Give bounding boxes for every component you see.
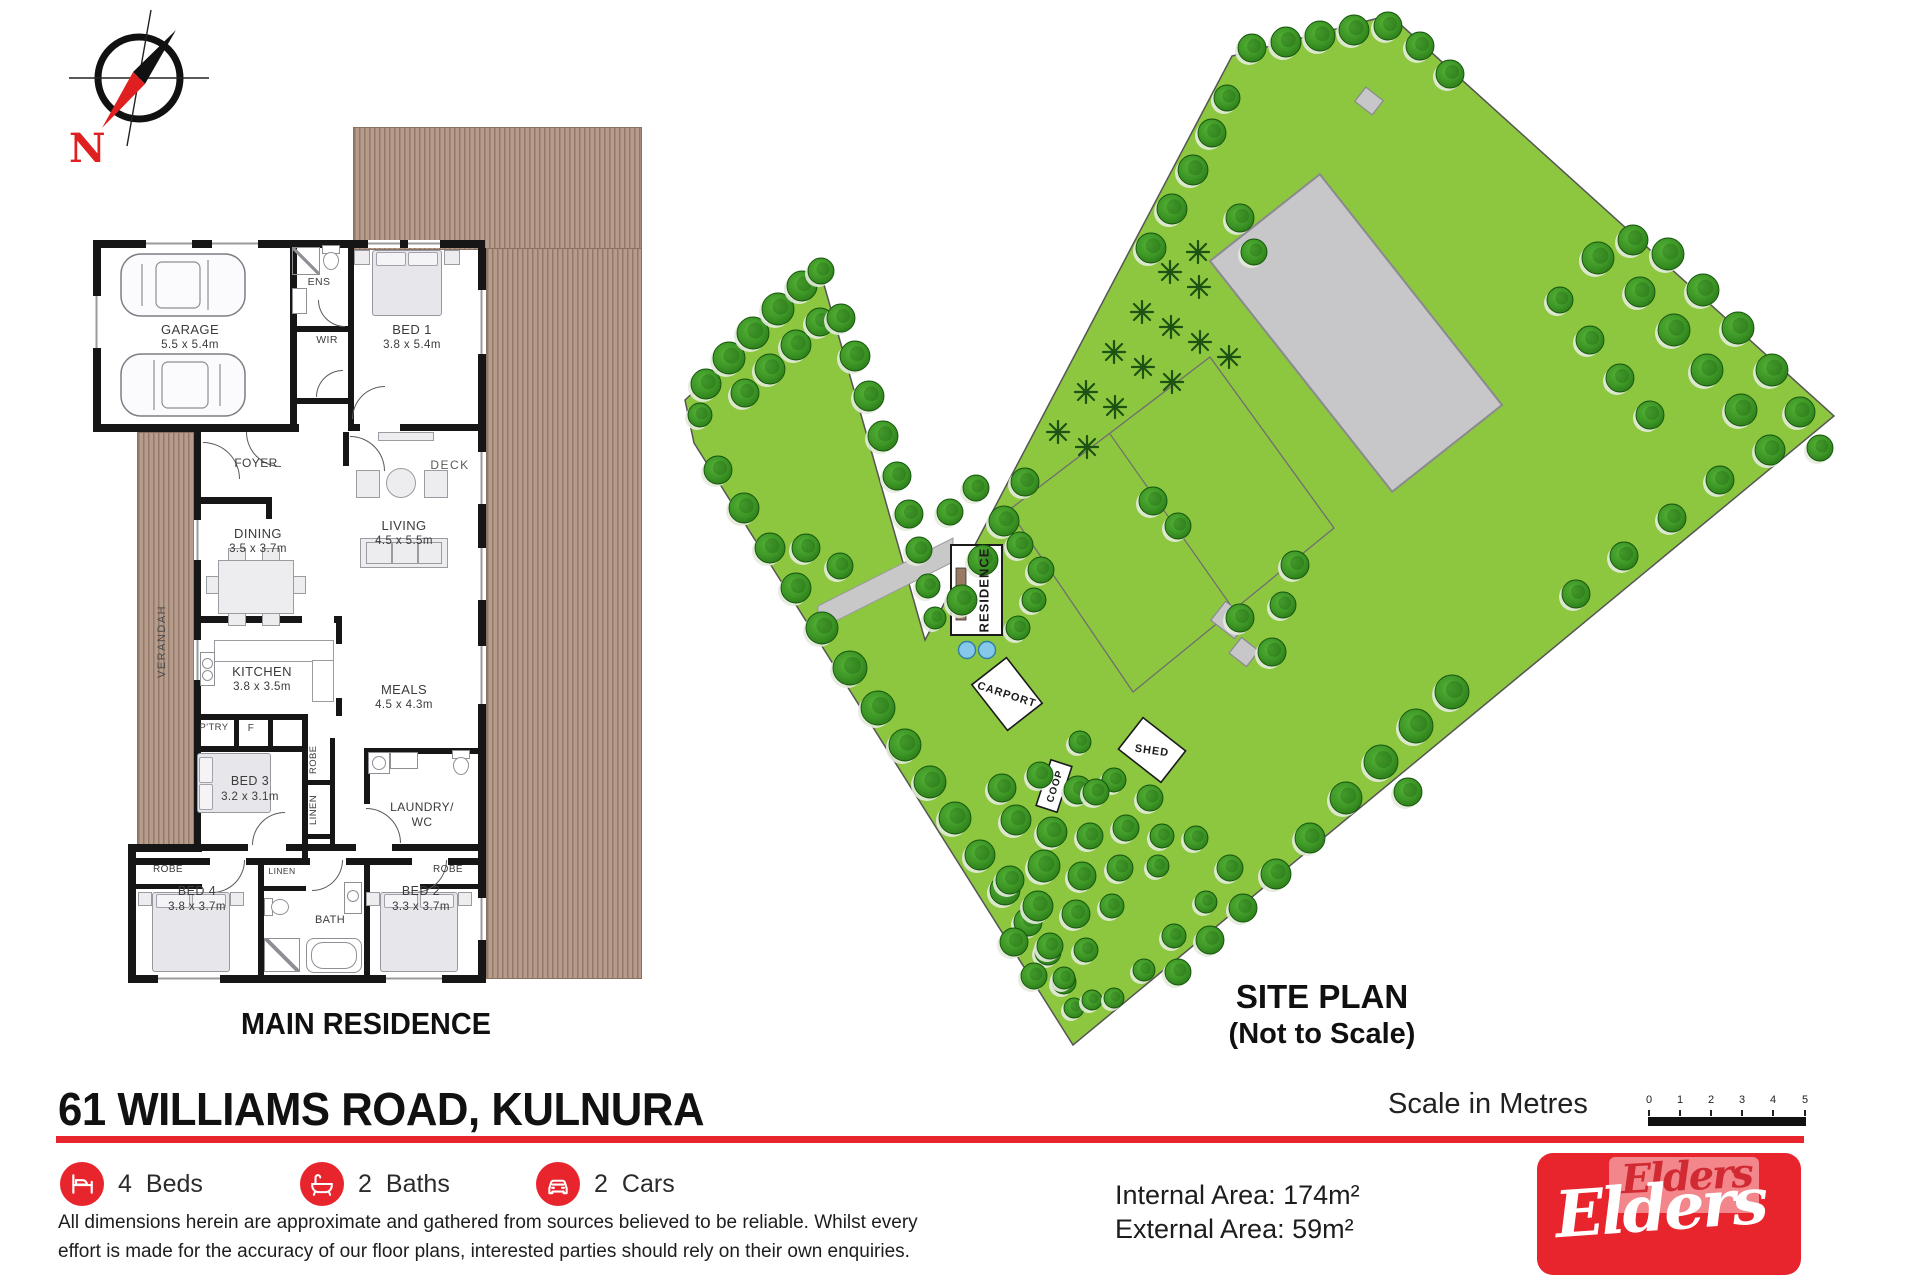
tree-texture xyxy=(957,590,972,605)
layer xyxy=(1648,1117,1806,1126)
tree-texture xyxy=(835,558,848,571)
pillow xyxy=(408,252,438,266)
beds-icon xyxy=(60,1162,104,1206)
tree-texture xyxy=(899,735,915,751)
tree-texture xyxy=(1154,859,1165,870)
tree-texture xyxy=(1555,292,1568,305)
div: LIVING xyxy=(334,518,474,534)
svg xyxy=(545,1171,571,1197)
furniture xyxy=(378,432,434,441)
scale-tick-label: 4 xyxy=(1770,1094,1776,1106)
wall xyxy=(364,865,370,975)
tree-texture xyxy=(765,538,780,553)
palm-tree xyxy=(1188,276,1210,298)
div: BATH xyxy=(304,914,356,928)
wall xyxy=(400,424,478,431)
baths-icon xyxy=(300,1162,344,1206)
tree-texture xyxy=(1795,402,1810,417)
bed4-label: BED 43.8 x 3.7m xyxy=(134,884,260,914)
tree-texture xyxy=(999,511,1014,526)
palm-tree xyxy=(1103,341,1125,363)
tree-texture xyxy=(1045,938,1058,951)
main-residence-caption: MAIN RESIDENCE xyxy=(227,1006,506,1042)
furniture xyxy=(228,613,246,626)
div: BED 4 xyxy=(134,884,260,900)
robe-bed2-label: ROBE xyxy=(422,864,474,877)
circle xyxy=(1197,285,1201,289)
tree-texture xyxy=(1645,406,1659,420)
tree-texture xyxy=(949,808,965,824)
tree-texture xyxy=(1403,783,1417,797)
wall xyxy=(343,432,349,466)
palm-tree xyxy=(1160,316,1182,338)
tree-texture xyxy=(924,772,940,788)
tree-texture xyxy=(1115,860,1128,873)
tree-texture xyxy=(1111,992,1121,1002)
tree-texture xyxy=(1697,280,1713,296)
wall xyxy=(330,738,335,844)
palm-tree xyxy=(1161,371,1183,393)
svg xyxy=(69,1171,95,1197)
div: MEALS xyxy=(334,682,474,698)
car-icon xyxy=(118,350,248,420)
tree-texture xyxy=(1281,32,1296,47)
tree-texture xyxy=(1662,244,1678,260)
wall xyxy=(93,424,299,432)
external-area: External Area: 59m² xyxy=(1115,1212,1360,1246)
dims: 4.5 x 4.3m xyxy=(334,698,474,712)
path xyxy=(549,1181,566,1193)
furniture xyxy=(424,470,448,498)
tree-texture xyxy=(1192,830,1204,842)
tree-texture xyxy=(1585,331,1599,345)
tree-texture xyxy=(1383,17,1397,31)
baths-count: 2Baths xyxy=(358,1170,450,1199)
tree-texture xyxy=(892,467,906,481)
residence-label: RESIDENCE xyxy=(977,548,992,633)
deck-label: DECK xyxy=(420,458,480,473)
span: Beds xyxy=(146,1170,203,1198)
tree-texture xyxy=(1765,440,1780,455)
wall xyxy=(346,858,412,865)
fridge-label: F xyxy=(240,723,262,736)
tree-texture xyxy=(1815,440,1828,453)
wall xyxy=(478,248,486,975)
rect xyxy=(121,254,245,316)
tree-texture xyxy=(971,480,984,493)
tree-texture xyxy=(1222,90,1235,103)
tree-texture xyxy=(1030,592,1042,604)
tree-texture xyxy=(1158,828,1170,840)
circle xyxy=(1196,250,1200,254)
tree-texture xyxy=(701,374,716,389)
circle xyxy=(1084,390,1088,394)
scale-tick-label: 1 xyxy=(1677,1094,1683,1106)
tree-texture xyxy=(844,657,861,674)
tree-texture xyxy=(1615,369,1629,383)
circle xyxy=(1141,365,1145,369)
tree-texture xyxy=(1148,492,1162,506)
pillow xyxy=(376,252,406,266)
tree-texture xyxy=(1082,942,1094,954)
tree-texture xyxy=(1667,509,1681,523)
circle xyxy=(1227,355,1231,359)
tree-texture xyxy=(945,504,958,517)
tree-texture xyxy=(1349,20,1364,35)
tree-texture xyxy=(1628,230,1643,245)
div: BED 3 xyxy=(186,774,314,790)
b: 2 xyxy=(358,1170,372,1198)
verandah-label: VERANDAH xyxy=(156,576,170,706)
div: WIR xyxy=(305,334,349,347)
water-tank xyxy=(959,642,976,659)
tree-texture xyxy=(1635,282,1650,297)
door-arc xyxy=(312,860,343,891)
tree-texture xyxy=(1145,790,1158,803)
tree-texture xyxy=(914,542,927,555)
window xyxy=(478,548,486,600)
meals-label: MEALS4.5 x 4.3m xyxy=(334,682,474,713)
tree-texture xyxy=(1225,860,1238,873)
internal-area: Internal Area: 174m² xyxy=(1115,1178,1360,1212)
tree-texture xyxy=(872,697,889,714)
window xyxy=(146,240,192,248)
robe-bed4-label: ROBE xyxy=(142,864,194,877)
circle xyxy=(1085,445,1089,449)
fixture xyxy=(292,247,320,275)
window xyxy=(478,290,486,354)
circle xyxy=(1169,325,1173,329)
red-divider-bar xyxy=(56,1136,1804,1143)
tree-texture xyxy=(723,348,739,364)
tree-texture xyxy=(1089,994,1099,1004)
tree-texture xyxy=(836,309,850,323)
wall xyxy=(266,497,272,519)
tree-texture xyxy=(1571,585,1585,599)
fixture xyxy=(453,757,469,775)
scale-tick-label: 0 xyxy=(1646,1094,1652,1106)
window xyxy=(386,975,442,983)
tree-texture xyxy=(975,845,990,860)
tree-texture xyxy=(1619,547,1633,561)
tree-texture xyxy=(1202,895,1213,906)
tree-texture xyxy=(1036,562,1049,575)
div: P'TRY xyxy=(192,722,236,734)
palm-tree xyxy=(1047,421,1069,443)
scale-tick xyxy=(1772,1110,1774,1116)
bed3-label: BED 33.2 x 3.1m xyxy=(186,774,314,804)
door-arc xyxy=(318,300,345,327)
div: ENS xyxy=(299,276,339,289)
tree-texture xyxy=(1247,39,1261,53)
tree-texture xyxy=(1278,597,1291,610)
tree-texture xyxy=(1445,65,1459,79)
tree-texture xyxy=(1410,715,1427,732)
div: F xyxy=(240,723,262,736)
tree-texture xyxy=(924,578,936,590)
site-plan-caption: SITE PLAN xyxy=(1160,978,1484,1016)
rect xyxy=(121,354,245,416)
wall xyxy=(392,844,478,851)
area-summary: Internal Area: 174m² External Area: 59m² xyxy=(1115,1178,1360,1246)
svg xyxy=(309,1171,335,1197)
bed1-label: BED 13.8 x 5.4m xyxy=(352,322,472,353)
site-plan-subcaption: (Not to Scale) xyxy=(1160,1018,1484,1051)
circle xyxy=(1168,270,1172,274)
garage-label: GARAGE5.5 x 5.4m xyxy=(120,322,260,353)
wall xyxy=(194,844,248,851)
wall xyxy=(194,497,272,504)
tree-texture xyxy=(1235,609,1249,623)
palm-tree xyxy=(1159,261,1181,283)
tree-texture xyxy=(791,578,806,593)
dims: 3.2 x 3.1m xyxy=(186,790,314,804)
deck-area xyxy=(353,127,642,250)
path xyxy=(312,1175,332,1195)
scale-tick-label: 2 xyxy=(1708,1094,1714,1106)
wall xyxy=(128,844,202,852)
tree-texture xyxy=(1015,537,1028,550)
dims: 5.5 x 5.4m xyxy=(120,338,260,352)
door-arc xyxy=(316,370,343,397)
living-label: LIVING4.5 x 5.5m xyxy=(334,518,474,549)
laundry-label: LAUNDRY/WC xyxy=(370,800,474,830)
tree-texture xyxy=(1732,318,1748,334)
robe-bed3-label: ROBE xyxy=(308,742,320,778)
tree-texture xyxy=(864,386,879,401)
tree-texture xyxy=(1060,971,1071,982)
tree-texture xyxy=(1140,963,1151,974)
wall xyxy=(246,858,310,865)
tree-texture xyxy=(1701,360,1717,376)
wall xyxy=(268,714,273,748)
window xyxy=(368,240,400,248)
foyer-label: FOYER xyxy=(216,456,296,471)
tree-texture xyxy=(1009,933,1023,947)
tree-texture xyxy=(747,323,763,339)
tree-texture xyxy=(1085,828,1098,841)
div: ROBE xyxy=(422,864,474,877)
tree-texture xyxy=(1271,864,1286,879)
scale-bar: 0 1 2 3 4 5 xyxy=(1648,1094,1806,1130)
tree-texture xyxy=(1005,871,1019,885)
palm-tree xyxy=(1076,436,1098,458)
tree-texture xyxy=(1076,735,1087,746)
div: LINEN xyxy=(260,866,304,877)
span: Baths xyxy=(386,1170,450,1198)
linen-hall-label: LINEN xyxy=(308,788,320,832)
tree-texture xyxy=(1766,360,1782,376)
door-arc xyxy=(352,386,385,419)
wall xyxy=(286,844,356,851)
div: DINING xyxy=(188,526,328,542)
palm-tree xyxy=(1187,241,1209,263)
tree-texture xyxy=(740,384,754,398)
div: WC xyxy=(370,815,474,830)
furniture xyxy=(218,560,294,614)
water-tank xyxy=(979,642,996,659)
span: effort is made for the accuracy of our f… xyxy=(58,1241,910,1262)
span: All dimensions herein are approximate an… xyxy=(58,1212,918,1233)
dims: 3.8 x 3.5m xyxy=(192,680,332,694)
door-arc xyxy=(350,436,385,471)
div: KITCHEN xyxy=(192,664,332,680)
window xyxy=(158,975,220,983)
palm-tree xyxy=(1075,381,1097,403)
circle xyxy=(1112,350,1116,354)
tree-texture xyxy=(1290,556,1304,570)
beds-count: 4Beds xyxy=(118,1170,203,1199)
path xyxy=(73,1175,91,1192)
tree-texture xyxy=(816,263,829,276)
tree-texture xyxy=(1108,898,1120,910)
cars-icon xyxy=(536,1162,580,1206)
elders-logo: Elders Elders xyxy=(1537,1153,1801,1275)
scale-tick xyxy=(1648,1110,1650,1116)
window xyxy=(478,646,486,704)
div: VERANDAH xyxy=(156,576,170,706)
tree-texture xyxy=(931,611,942,622)
car-icon xyxy=(118,250,248,320)
circle xyxy=(1140,310,1144,314)
tree-texture xyxy=(772,299,788,315)
tree-texture xyxy=(1173,964,1186,977)
scale-tick-label: 5 xyxy=(1802,1094,1808,1106)
fixture xyxy=(271,899,289,915)
b: 4 xyxy=(118,1170,132,1198)
tree-texture xyxy=(1020,473,1034,487)
linen-bath-label: LINEN xyxy=(260,866,304,877)
scale-tick xyxy=(1741,1110,1743,1116)
furniture xyxy=(293,576,306,594)
fixture xyxy=(372,756,386,770)
b: 2 xyxy=(594,1170,608,1198)
furniture xyxy=(214,640,334,662)
tree-texture xyxy=(1091,784,1104,797)
pantry-label: P'TRY xyxy=(192,722,236,734)
palm-tree xyxy=(1131,301,1153,323)
tree-texture xyxy=(1170,928,1182,940)
tree-texture xyxy=(791,335,806,350)
tree-texture xyxy=(1315,26,1330,41)
wall xyxy=(258,886,306,891)
tree-texture xyxy=(1305,828,1320,843)
wall xyxy=(194,714,306,720)
tree-texture xyxy=(1173,518,1186,531)
tree-texture xyxy=(816,618,832,634)
tree-texture xyxy=(1446,681,1463,698)
tree-texture xyxy=(1077,867,1091,881)
wir-label: WIR xyxy=(305,334,349,347)
tree-texture xyxy=(1038,856,1054,872)
elders-logo-script: Elders xyxy=(1553,1164,1768,1253)
dims: 3.8 x 3.7m xyxy=(134,900,260,914)
div: LINEN xyxy=(308,788,320,832)
palm-tree xyxy=(1189,331,1211,353)
tree-texture xyxy=(1267,643,1281,657)
palm-tree xyxy=(1104,396,1126,418)
tree-texture xyxy=(1205,931,1219,945)
div: GARAGE xyxy=(120,322,260,338)
tree-texture xyxy=(878,426,893,441)
tree-texture xyxy=(1715,471,1729,485)
tree-texture xyxy=(1035,767,1048,780)
tree-texture xyxy=(1033,896,1048,911)
fixture xyxy=(390,752,418,769)
tree-texture xyxy=(1207,124,1221,138)
furniture xyxy=(262,613,280,626)
wall xyxy=(194,746,306,752)
dims: 4.5 x 5.5m xyxy=(334,534,474,548)
kitchen-label: KITCHEN3.8 x 3.5m xyxy=(192,664,332,695)
door-arc xyxy=(252,812,285,845)
scale-tick xyxy=(1679,1110,1681,1116)
cars-count: 2Cars xyxy=(594,1170,675,1199)
furniture xyxy=(356,470,380,498)
wall xyxy=(336,616,342,644)
fixture xyxy=(264,938,300,972)
floor-plan: GARAGE5.5 x 5.4m ENS WIR BED 13.8 x 5.4m… xyxy=(0,0,700,1060)
tree-texture xyxy=(997,779,1011,793)
palm-tree xyxy=(1132,356,1154,378)
div: LAUNDRY/ xyxy=(370,800,474,815)
dims: 3.3 x 3.7m xyxy=(358,900,484,914)
div: FOYER xyxy=(216,456,296,471)
furniture xyxy=(206,576,219,594)
circle xyxy=(1113,405,1117,409)
scale-tick xyxy=(1710,1110,1712,1116)
page: RESIDENCE CARPORT SHED COOP N xyxy=(0,0,1920,1280)
palm-tree xyxy=(1218,346,1240,368)
scale-tick-label: 3 xyxy=(1739,1094,1745,1106)
tree-texture xyxy=(1375,751,1392,768)
tree-texture xyxy=(765,359,780,374)
bath-label: BATH xyxy=(304,914,356,928)
div: ROBE xyxy=(142,864,194,877)
tree-texture xyxy=(1110,772,1122,784)
furniture xyxy=(386,468,416,498)
tree-texture xyxy=(801,539,815,553)
bed2-label: BED 23.3 x 3.7m xyxy=(358,884,484,914)
tree-texture xyxy=(1668,320,1684,336)
tree-texture xyxy=(713,461,727,475)
window xyxy=(212,240,258,248)
furniture xyxy=(444,250,460,265)
tree-texture xyxy=(1238,899,1252,913)
dims: 3.5 x 3.7m xyxy=(188,542,328,556)
ens-label: ENS xyxy=(299,276,339,289)
furniture xyxy=(354,250,370,265)
tree-texture xyxy=(850,346,865,361)
window xyxy=(93,296,101,348)
wall xyxy=(302,834,335,839)
wall xyxy=(194,616,302,623)
tree-texture xyxy=(1071,905,1085,919)
fixture xyxy=(311,942,357,969)
circle xyxy=(1170,380,1174,384)
scale-label: Scale in Metres xyxy=(1388,1088,1588,1121)
property-address-title: 61 WILLIAMS ROAD, KULNURA xyxy=(58,1082,704,1136)
circle xyxy=(1198,340,1202,344)
tree-texture xyxy=(1029,968,1042,981)
tree-texture xyxy=(1146,238,1161,253)
circle xyxy=(1056,430,1060,434)
tree-texture xyxy=(1235,209,1249,223)
tree-texture xyxy=(1249,244,1262,257)
window xyxy=(408,240,440,248)
tree-texture xyxy=(904,505,918,519)
dining-label: DINING3.5 x 3.7m xyxy=(188,526,328,557)
